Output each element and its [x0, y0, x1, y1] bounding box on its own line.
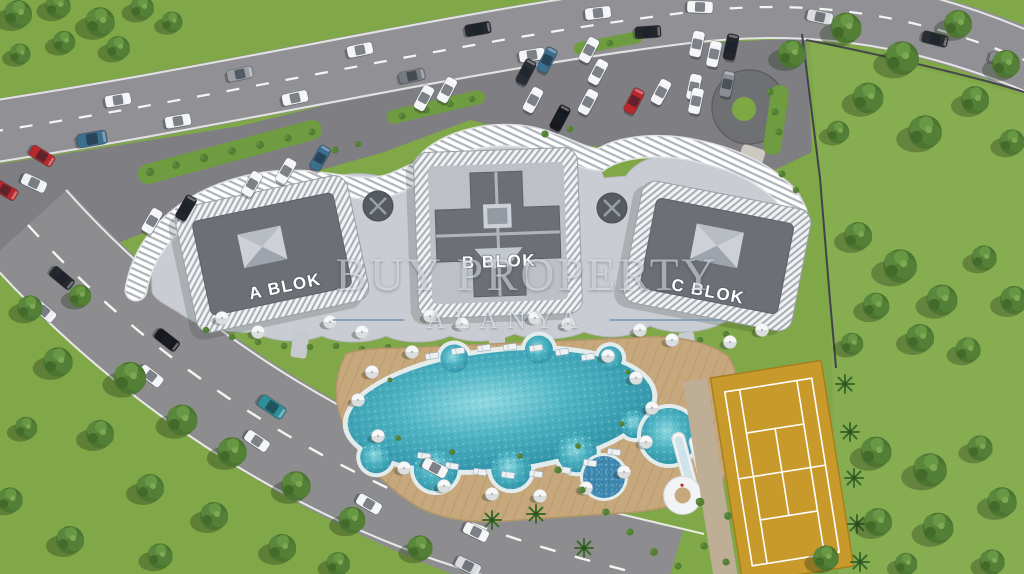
roof-vent-right — [597, 193, 627, 223]
palm-tree — [836, 375, 854, 393]
palm-tree — [845, 469, 863, 487]
car — [632, 25, 661, 39]
site-plan-render: A BLOK B BLOK C BLOK — [0, 0, 1024, 574]
car — [684, 0, 713, 13]
roof-vent-left — [363, 191, 393, 221]
palm-tree — [527, 505, 545, 523]
tower-b-label: B BLOK — [462, 251, 537, 273]
palm-tree — [483, 511, 501, 529]
palm-tree — [841, 423, 859, 441]
aerial-scene: A BLOK B BLOK C BLOK — [0, 0, 1024, 574]
tower-b: B BLOK — [405, 147, 583, 325]
palm-tree — [575, 539, 593, 557]
palm-tree — [851, 553, 869, 571]
